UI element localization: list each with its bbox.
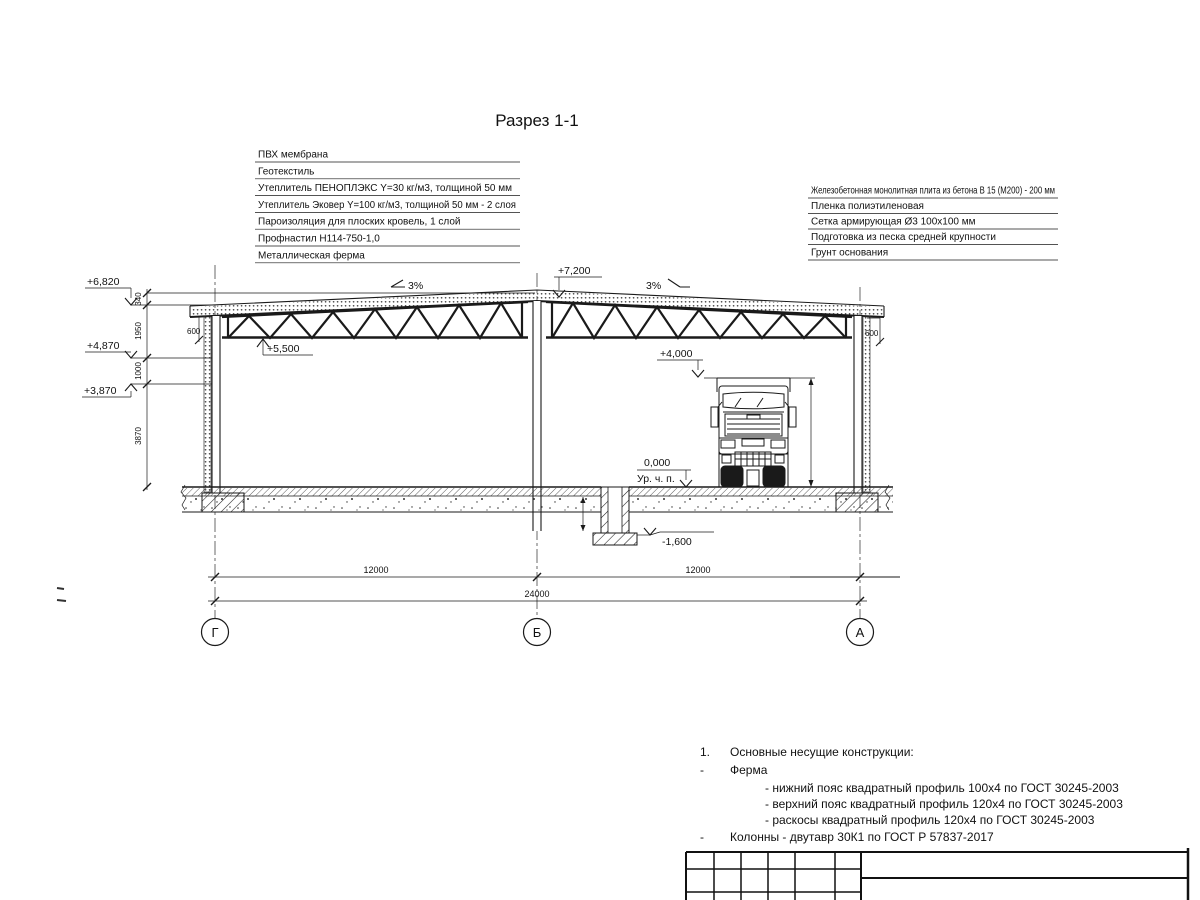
section-drawing: Разрез 1-1 ПВХ мембрана Геотекстиль Утеп… bbox=[0, 0, 1200, 900]
floor-layer-label: Пленка полиэтиленовая bbox=[811, 201, 924, 212]
floor-layer-label: Сетка армирующая Ø3 100х100 мм bbox=[811, 217, 976, 228]
floor-layer-label: Железобетонная монолитная плита из бетон… bbox=[811, 185, 1055, 197]
elevation-mid: +4,870 bbox=[85, 340, 212, 358]
column-right bbox=[854, 316, 862, 493]
dim-value: 3870 bbox=[134, 427, 143, 445]
grid-bubble-a: А bbox=[847, 619, 874, 646]
grid-bubble-g: Г bbox=[202, 619, 229, 646]
slope-mark-left: 3% bbox=[391, 280, 423, 292]
roof-layer-label: ПВХ мембрана bbox=[258, 149, 328, 161]
note-text: - нижний пояс квадратный профиль 100х4 п… bbox=[765, 781, 1119, 795]
roof-layer-label: Утеплитель Эковер Y=100 кг/м3, толщиной … bbox=[258, 200, 516, 211]
foundation-left bbox=[202, 493, 244, 512]
column-left bbox=[212, 316, 220, 493]
slope-mark-right: 3% bbox=[646, 279, 690, 292]
margin-marks bbox=[57, 588, 66, 601]
dim-value: 600 bbox=[865, 329, 879, 338]
slope-value: 3% bbox=[408, 280, 423, 292]
dim-value: 12000 bbox=[685, 565, 710, 575]
foundation-right bbox=[836, 493, 878, 512]
axis-label: Г bbox=[211, 625, 218, 640]
note-text: Основные несущие конструкции: bbox=[730, 745, 914, 759]
roof-layer-label: Геотекстиль bbox=[258, 166, 314, 177]
elevation-value: +6,820 bbox=[87, 276, 120, 288]
floor-layer-label: Грунт основания bbox=[811, 248, 888, 259]
roof-layer-label: Пароизоляция для плоских кровель, 1 слой bbox=[258, 217, 461, 228]
axis-label: А bbox=[856, 625, 865, 640]
truck bbox=[711, 378, 796, 487]
note-number: 1. bbox=[700, 745, 710, 759]
grid-bubble-b: Б bbox=[524, 619, 551, 646]
notes-block: 1. Основные несущие конструкции: - Ферма… bbox=[700, 745, 1123, 844]
dim-600-left: 600 bbox=[187, 316, 203, 344]
elevation-footing: -1,600 bbox=[637, 528, 714, 548]
note-text: Ферма bbox=[730, 763, 768, 777]
note-marker: - bbox=[700, 763, 704, 777]
roof-callout-block: ПВХ мембрана Геотекстиль Утеплитель ПЕНО… bbox=[255, 149, 520, 263]
note-text: - раскосы квадратный профиль 120х4 по ГО… bbox=[765, 813, 1095, 827]
drawing-sheet: Разрез 1-1 ПВХ мембрана Геотекстиль Утеп… bbox=[0, 0, 1200, 900]
title-block bbox=[686, 848, 1188, 900]
floor-layer-label: Подготовка из песка средней крупности bbox=[811, 232, 996, 243]
dim-value: 12000 bbox=[363, 565, 388, 575]
wall-panel-right bbox=[863, 316, 870, 492]
elevation-floor: 0,000 Ур. ч. п. bbox=[637, 457, 692, 487]
drawing-title: Разрез 1-1 bbox=[495, 111, 578, 130]
elevation-clearance: +4,000 bbox=[657, 348, 704, 377]
floor-callout-block: Железобетонная монолитная плита из бетон… bbox=[808, 185, 1058, 261]
dimension-row-total: 24000 bbox=[208, 589, 867, 605]
roof-layer-label: Утеплитель ПЕНОПЛЭКС Y=30 кг/м3, толщино… bbox=[258, 183, 512, 194]
slope-value: 3% bbox=[646, 280, 661, 292]
elevation-value: +4,000 bbox=[660, 348, 693, 360]
dim-value: 1950 bbox=[134, 322, 143, 340]
note-text: - верхний пояс квадратный профиль 120х4 … bbox=[765, 797, 1123, 811]
elevation-value: +7,200 bbox=[558, 265, 591, 277]
floor-level-label: Ур. ч. п. bbox=[637, 473, 675, 485]
elevation-value: -1,600 bbox=[662, 536, 692, 548]
axis-label: Б bbox=[533, 625, 542, 640]
elevation-value: 0,000 bbox=[644, 457, 670, 469]
elevation-value: +3,870 bbox=[84, 385, 117, 397]
note-marker: - bbox=[700, 830, 704, 844]
dim-value: 24000 bbox=[524, 589, 549, 599]
note-text: Колонны - двутавр 30К1 по ГОСТ Р 57837-2… bbox=[730, 830, 994, 844]
elevation-value: +4,870 bbox=[87, 340, 120, 352]
dim-value: 600 bbox=[187, 327, 201, 336]
elevation-eave: +6,820 bbox=[85, 276, 212, 305]
elevation-truss-bottom: +5,500 bbox=[257, 339, 313, 355]
dim-value: 1000 bbox=[134, 362, 143, 380]
dim-value: 340 bbox=[134, 292, 143, 306]
roof-layer-label: Металлическая ферма bbox=[258, 249, 365, 261]
roof-layer-label: Профнастил Н114-750-1,0 bbox=[258, 233, 380, 245]
elevation-value: +5,500 bbox=[267, 343, 300, 355]
floor-slab bbox=[181, 485, 893, 512]
vertical-dimension-chain: 340 1950 1000 3870 bbox=[134, 289, 535, 491]
dimension-row-spans: 12000 12000 bbox=[208, 565, 900, 581]
wall-panel-left bbox=[204, 316, 211, 492]
